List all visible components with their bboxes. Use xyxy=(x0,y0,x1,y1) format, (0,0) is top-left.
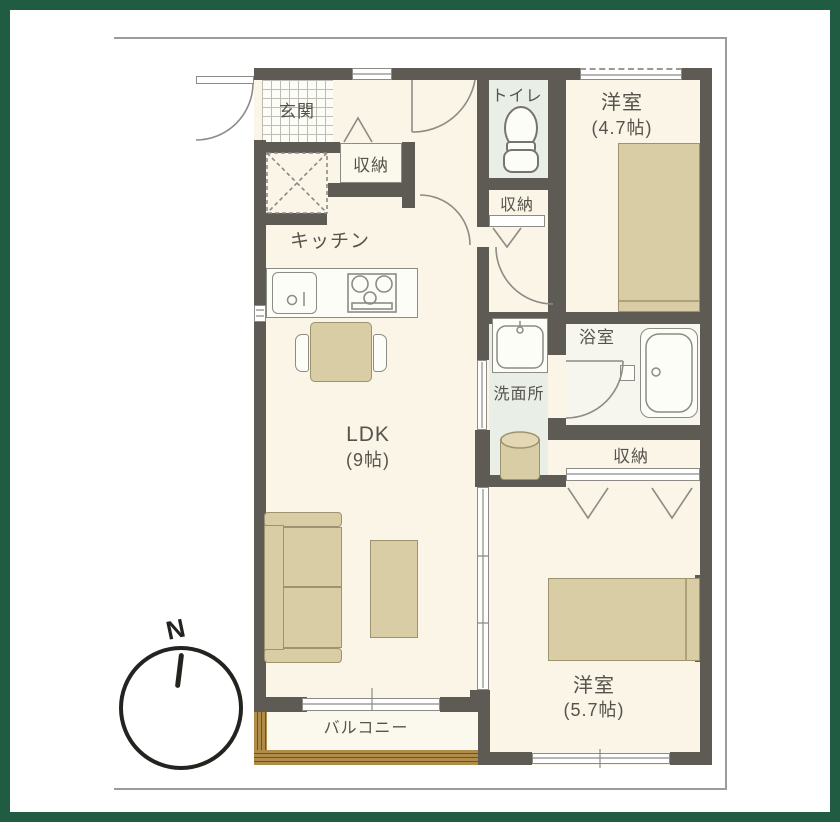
room-label-toilet-storage: 収納 xyxy=(500,198,534,214)
sink-detail xyxy=(288,292,305,306)
room-size-bedroom-main: (5.7帖) xyxy=(563,701,624,719)
floor-plan-page: N 玄関 収納 キッチン トイレ 収納 洋室 (4.7帖) LDK (9帖) 洗… xyxy=(0,0,840,822)
room-label-bedroom-main: 洋室 xyxy=(573,676,615,696)
vestibule-door-arc xyxy=(496,247,553,304)
bathtub-detail xyxy=(646,334,692,412)
floor-plan-scene: N 玄関 収納 キッチン トイレ 収納 洋室 (4.7帖) LDK (9帖) 洗… xyxy=(0,0,840,822)
window-detail-lines xyxy=(256,74,700,768)
room-size-bedroom-small: (4.7帖) xyxy=(591,119,652,137)
washing-machine-lid xyxy=(501,432,539,448)
dashed-x-box xyxy=(267,153,327,213)
bath-door-arc xyxy=(566,361,623,418)
vanity-detail xyxy=(497,321,543,368)
closet-fold-symbol xyxy=(568,488,608,518)
room-size-ldk: (9帖) xyxy=(346,451,390,469)
room-label-washroom: 洗面所 xyxy=(493,387,544,403)
bed-pillow-lines xyxy=(618,301,700,661)
toilet-icon xyxy=(504,107,538,172)
entry-door-arc xyxy=(196,83,253,140)
room-label-hall-storage: 収納 xyxy=(353,157,389,174)
room-label-balcony: バルコニー xyxy=(324,721,409,737)
hall-door-arc xyxy=(412,80,475,132)
closet-fold-symbol xyxy=(493,228,521,247)
room-label-kitchen: キッチン xyxy=(290,232,370,251)
stove-icon xyxy=(348,274,396,312)
room-label-bathroom: 浴室 xyxy=(579,329,615,346)
room-label-genkan: 玄関 xyxy=(279,103,315,120)
closet-fold-symbol xyxy=(344,118,372,142)
room-label-bedroom-storage: 収納 xyxy=(613,448,649,465)
room-label-toilet: トイレ xyxy=(491,89,542,105)
room-label-bedroom-small: 洋室 xyxy=(601,93,643,113)
closet-fold-symbol xyxy=(652,488,692,518)
room-label-ldk: LDK xyxy=(346,424,390,445)
ldk-door-arc xyxy=(420,195,470,245)
